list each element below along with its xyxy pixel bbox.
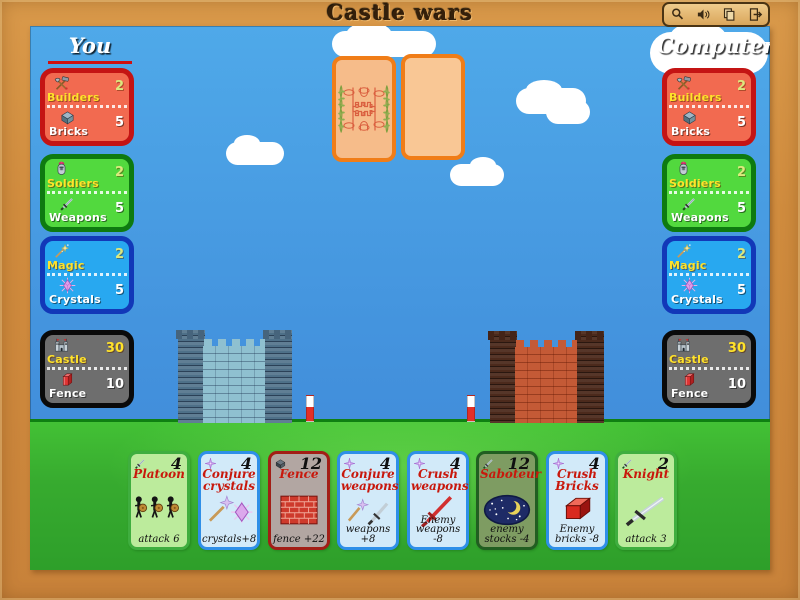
magic-label: Magic: [669, 259, 707, 272]
divider: [47, 105, 127, 108]
panel-you-magic-crystals: Magic 2 Crystals 5: [40, 236, 134, 314]
soldiers-icon: [675, 161, 692, 178]
big-sword-art: [620, 493, 672, 527]
weapons-label: Weapons: [49, 211, 107, 224]
builders-icon: [53, 75, 70, 92]
weapons-icon: [681, 195, 698, 212]
castle-label: Castle: [47, 353, 87, 366]
cloud: [516, 88, 586, 114]
divider: [669, 273, 749, 276]
card-title: Knight: [619, 469, 673, 481]
soldiers-icon: [53, 161, 70, 178]
hand-card-crush-bricks[interactable]: 4 Crush Bricks Enemy bricks -8: [546, 451, 608, 550]
tower: [178, 330, 205, 423]
crystals-label: Crystals: [671, 293, 723, 306]
panel-you-castle-fence: Castle 30 Fence 10: [40, 330, 134, 408]
divider: [669, 191, 749, 194]
card-effect: enemy stocks -4: [480, 525, 534, 544]
crystals-icon: [59, 277, 76, 294]
weapons-icon: [59, 195, 76, 212]
panel-computer-magic-crystals: Magic 2 Crystals 5: [662, 236, 756, 314]
turn-indicator-underline: [48, 61, 132, 64]
game-board: You Computer Builders 2 Bricks 5 Soldier…: [30, 26, 770, 570]
draw-pile-card-back[interactable]: [332, 56, 396, 162]
fence-marker-you: [306, 395, 314, 422]
soldiers-value: 2: [115, 165, 124, 180]
builders-icon: [675, 75, 692, 92]
divider: [669, 105, 749, 108]
castle-wall: [203, 346, 267, 423]
hand-card-platoon[interactable]: 4 Platoon attack 6: [128, 451, 190, 550]
fence-marker-computer: [467, 395, 475, 422]
magnifier-icon[interactable]: [670, 7, 685, 22]
platoon-art: [133, 493, 185, 527]
magic-icon: [675, 243, 692, 260]
castle-icon: [675, 337, 692, 354]
bricks-value: 5: [737, 115, 746, 130]
panel-computer-castle-fence: Castle 30 Fence 10: [662, 330, 756, 408]
builders-value: 2: [737, 79, 746, 94]
divider: [47, 367, 127, 370]
crystals-label: Crystals: [49, 293, 101, 306]
castle-value: 30: [106, 341, 124, 356]
divider: [47, 273, 127, 276]
cloud: [226, 142, 284, 165]
hand-card-crush-weapons[interactable]: 4 Crush weapons Enemy weapons -8: [407, 451, 469, 550]
player-label-you: You: [35, 33, 145, 58]
castle-label: Castle: [669, 353, 709, 366]
card-title: Crush weapons: [411, 469, 465, 492]
card-back-art: [336, 60, 392, 158]
card-title: Fence: [272, 469, 326, 481]
card-effect: weapons +8: [341, 525, 395, 544]
soldiers-value: 2: [737, 165, 746, 180]
crystals-value: 5: [737, 283, 746, 298]
magic-label: Magic: [47, 259, 85, 272]
copy-icon[interactable]: [722, 7, 737, 22]
weapons-value: 5: [737, 201, 746, 216]
fence-icon: [681, 371, 698, 388]
card-effect: fence +22: [272, 535, 326, 545]
castle-you: [178, 330, 292, 423]
card-effect: attack 6: [132, 535, 186, 545]
player-label-computer: Computer: [657, 33, 767, 58]
toolbar: [662, 2, 770, 27]
tower: [490, 331, 517, 423]
card-title: Platoon: [132, 469, 186, 481]
bricks-value: 5: [115, 115, 124, 130]
builders-value: 2: [115, 79, 124, 94]
fence-label: Fence: [671, 387, 708, 400]
card-effect: attack 3: [619, 535, 673, 545]
bricks-icon: [681, 109, 698, 126]
builders-label: Builders: [47, 91, 100, 104]
divider: [669, 367, 749, 370]
fence-value: 10: [728, 377, 746, 392]
discard-slot: [401, 54, 465, 160]
bricks-icon: [59, 109, 76, 126]
cloud: [450, 164, 504, 186]
soldiers-label: Soldiers: [669, 177, 721, 190]
castle-wall: [515, 347, 579, 423]
fence-label: Fence: [49, 387, 86, 400]
builders-label: Builders: [669, 91, 722, 104]
night-moon-art: [481, 493, 533, 527]
card-title: Conjure weapons: [341, 469, 395, 492]
panel-computer-soldiers-weapons: Soldiers 2 Weapons 5: [662, 154, 756, 232]
card-effect: Enemy weapons -8: [411, 516, 465, 545]
magic-value: 2: [115, 247, 124, 262]
bricks-label: Bricks: [49, 125, 88, 138]
conjure-crystals-art: [203, 493, 255, 527]
fence-value: 10: [106, 377, 124, 392]
castle-value: 30: [728, 341, 746, 356]
bricks-label: Bricks: [671, 125, 710, 138]
crystals-icon: [681, 277, 698, 294]
sound-icon[interactable]: [696, 7, 711, 22]
card-title: Saboteur: [480, 469, 534, 481]
brick-wall-art: [273, 493, 325, 527]
red-brick-art: [551, 493, 603, 527]
tower: [265, 330, 292, 423]
fence-icon: [59, 371, 76, 388]
hand-card-conjure-weapons[interactable]: 4 Conjure weapons weapons +8: [337, 451, 399, 550]
card-effect: Enemy bricks -8: [550, 525, 604, 544]
weapons-value: 5: [115, 201, 124, 216]
hand-card-conjure-crystals[interactable]: 4 Conjure crystals crystals+8: [198, 451, 260, 550]
card-title: Crush Bricks: [550, 469, 604, 492]
weapons-label: Weapons: [671, 211, 729, 224]
card-effect: crystals+8: [202, 535, 256, 545]
castle-icon: [53, 337, 70, 354]
panel-you-builders-bricks: Builders 2 Bricks 5: [40, 68, 134, 146]
panel-computer-builders-bricks: Builders 2 Bricks 5: [662, 68, 756, 146]
hand-card-saboteur[interactable]: 12 Saboteur enemy stocks -4: [476, 451, 538, 550]
castle-computer: [490, 331, 604, 423]
soldiers-label: Soldiers: [47, 177, 99, 190]
magic-value: 2: [737, 247, 746, 262]
crystals-value: 5: [115, 283, 124, 298]
panel-you-soldiers-weapons: Soldiers 2 Weapons 5: [40, 154, 134, 232]
exit-icon[interactable]: [748, 7, 763, 22]
card-title: Conjure crystals: [202, 469, 256, 492]
hand-card-fence[interactable]: 12 Fence fence +22: [268, 451, 330, 550]
magic-icon: [53, 243, 70, 260]
tower: [577, 331, 604, 423]
divider: [47, 191, 127, 194]
hand-card-knight[interactable]: 2 Knight attack 3: [615, 451, 677, 550]
conjure-weapons-art: [342, 493, 394, 527]
